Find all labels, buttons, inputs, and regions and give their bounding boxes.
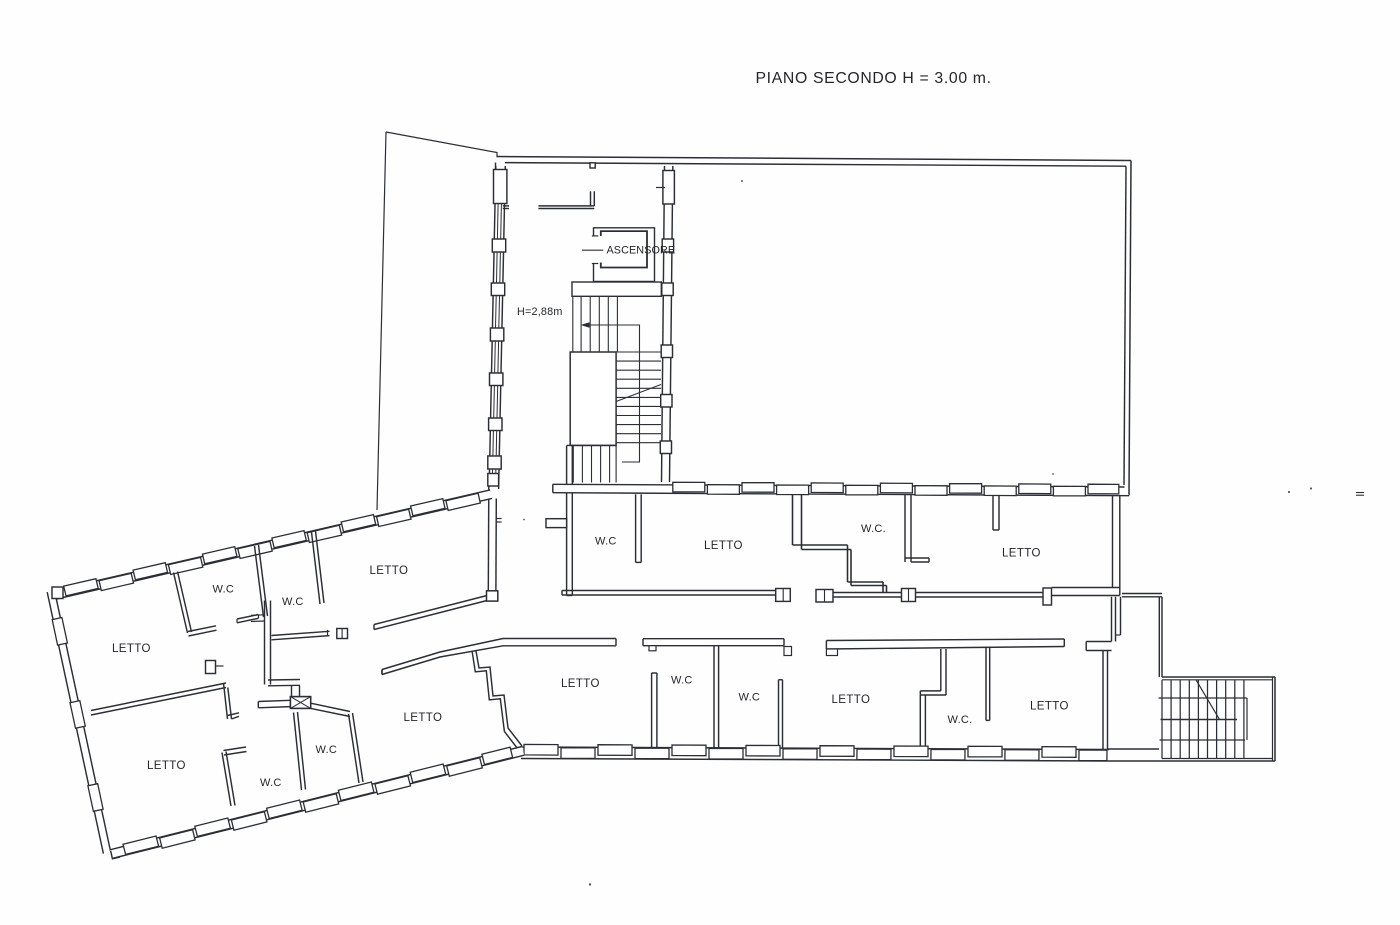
svg-text:LETTO: LETTO: [1002, 548, 1041, 560]
svg-text:LETTO: LETTO: [147, 760, 186, 772]
svg-text:LETTO: LETTO: [704, 540, 743, 552]
svg-text:LETTO: LETTO: [112, 643, 151, 655]
svg-text:LETTO: LETTO: [370, 565, 409, 577]
svg-text:W.C: W.C: [282, 596, 304, 608]
svg-text:W.C.: W.C.: [861, 523, 886, 535]
svg-text:PIANO SECONDO H = 3.00 m.: PIANO SECONDO H = 3.00 m.: [756, 70, 992, 87]
svg-text:ASCENSORE: ASCENSORE: [607, 245, 676, 257]
svg-text:W.C: W.C: [316, 744, 338, 756]
svg-text:W.C: W.C: [595, 536, 617, 548]
svg-text:W.C: W.C: [739, 692, 761, 704]
svg-text:LETTO: LETTO: [1030, 701, 1069, 713]
svg-text:LETTO: LETTO: [404, 712, 443, 724]
svg-text:W.C.: W.C.: [948, 714, 973, 726]
svg-text:W.C: W.C: [671, 675, 693, 687]
svg-text:LETTO: LETTO: [561, 678, 600, 690]
svg-text:W.C: W.C: [260, 777, 282, 789]
svg-text:H=2,88m: H=2,88m: [517, 306, 563, 318]
svg-text:LETTO: LETTO: [832, 694, 871, 706]
svg-text:W.C: W.C: [213, 584, 235, 596]
